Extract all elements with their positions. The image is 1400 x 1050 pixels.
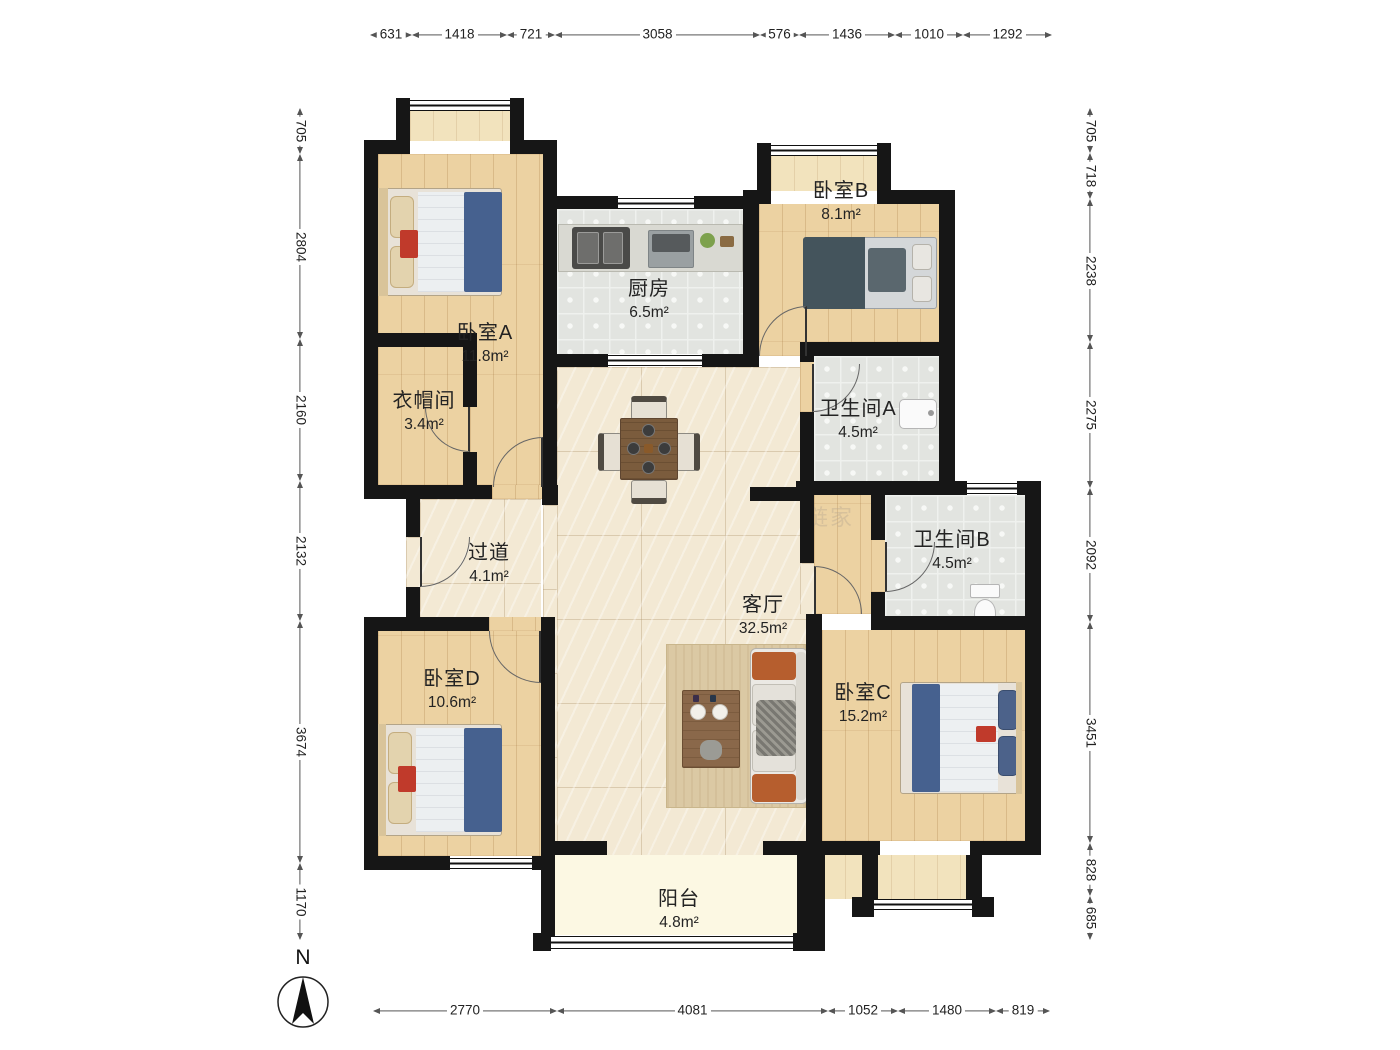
bottle (693, 695, 699, 702)
dimension-segment: 3674 (291, 621, 309, 863)
toilet-tank (970, 584, 1000, 598)
wall-segment (532, 856, 555, 870)
wall-segment (972, 897, 994, 917)
room-label-hallway: 过道4.1m² (429, 536, 549, 586)
dimension-segment: 2238 (1081, 199, 1099, 342)
table-centerpiece (644, 444, 653, 453)
dimension-segment: 705 (291, 108, 309, 154)
sofa-throw-blanket (756, 700, 796, 756)
dimension-segment: 2132 (291, 481, 309, 621)
wall-segment (796, 481, 967, 495)
wall-segment (800, 495, 814, 563)
dimension-segment: 2092 (1081, 488, 1099, 622)
dimension-segment: 1170 (291, 863, 309, 940)
sofa-cushion-orange (752, 652, 796, 680)
kitchen-utensils (720, 236, 734, 247)
wall-segment (966, 855, 982, 899)
table-decor (700, 740, 722, 760)
wall-segment (548, 354, 608, 367)
wall-segment (763, 841, 808, 855)
window-balcony (551, 936, 793, 949)
wall-segment (852, 897, 874, 917)
dining-chair (598, 433, 622, 471)
wall-segment (806, 614, 822, 855)
room-label-living: 客厅32.5m² (703, 588, 823, 638)
bed-headboard (1016, 682, 1022, 794)
dimension-chain-left: 705 2804 2160 2132 3674 1170 (291, 108, 309, 940)
wall-segment (871, 616, 1039, 630)
tableware (712, 704, 728, 720)
dimension-segment: 721 (507, 26, 555, 44)
wall-segment (757, 143, 771, 204)
plate (658, 442, 671, 455)
tableware (690, 704, 706, 720)
bed-blanket-red (398, 766, 416, 792)
dimension-segment: 1010 (895, 26, 963, 44)
sliding-door-kitchen (608, 355, 702, 366)
wall-segment (543, 140, 557, 485)
window-bay-bedroom-a (410, 100, 510, 111)
dimension-segment: 2275 (1081, 342, 1099, 488)
room-label-balcony: 阳台4.8m² (619, 882, 739, 932)
window-bay-bedroom-c (874, 899, 972, 910)
wall-segment (396, 98, 410, 154)
wall-segment (743, 190, 759, 366)
wall-segment (406, 485, 420, 537)
window-kitchen (618, 198, 694, 209)
room-label-bedroom-b: 卧室B8.1m² (781, 174, 901, 224)
dining-chair (631, 480, 667, 504)
room-label-bedroom-a: 卧室A11.8m² (425, 316, 545, 366)
dimension-segment: 2770 (373, 1002, 557, 1020)
wall-segment (364, 617, 489, 631)
wall-segment (547, 841, 607, 855)
room-label-cloakroom: 衣帽间3.4m² (364, 384, 484, 434)
bed-blanket-red (976, 726, 996, 742)
wall-segment (862, 855, 878, 899)
dimension-segment: 1480 (898, 1002, 996, 1020)
wall-segment (1025, 495, 1041, 855)
bed-blanket-blue (464, 728, 502, 832)
dimension-chain-right: 705 718 2238 2275 2092 3451 828 685 (1081, 108, 1099, 940)
dimension-segment: 819 (996, 1002, 1050, 1020)
compass-icon (274, 972, 332, 1030)
floor-door-gap (871, 540, 885, 592)
sink-basin (603, 232, 623, 264)
compass-north-label: N (274, 946, 332, 970)
dimension-segment: 828 (1081, 843, 1099, 896)
dimension-segment: 3451 (1081, 622, 1099, 843)
room-label-bathroom-a: 卫生间A4.5m² (798, 392, 918, 442)
sofa-backrest (796, 652, 806, 800)
dimension-segment: 576 (760, 26, 799, 44)
plate (642, 424, 655, 437)
wall-segment (364, 856, 450, 870)
wall-segment (510, 98, 524, 154)
wall-segment (702, 354, 759, 367)
bed-quilt (418, 192, 464, 292)
plate (627, 442, 640, 455)
dimension-segment: 685 (1081, 896, 1099, 940)
dimension-segment: 2804 (291, 154, 309, 339)
wall-segment (533, 933, 551, 951)
dimension-chain-bottom: 2770 4081 1052 1480 819 (373, 1002, 1050, 1020)
wall-segment (970, 841, 1041, 855)
basin-drain (928, 410, 934, 416)
dimension-segment: 3058 (555, 26, 760, 44)
dimension-segment: 4081 (557, 1002, 828, 1020)
floor-door-gap (406, 537, 420, 587)
bottle (710, 695, 716, 702)
dining-chair (631, 396, 667, 420)
bed-blanket-teal (803, 237, 865, 309)
sink-basin (577, 232, 599, 264)
wall-segment (806, 841, 880, 855)
dimension-segment: 631 (370, 26, 412, 44)
dimension-segment: 718 (1081, 153, 1099, 199)
bed-quilt (416, 728, 464, 832)
wall-segment (750, 487, 807, 501)
bed-blanket-red (400, 230, 418, 258)
dimension-segment: 1418 (412, 26, 507, 44)
dimension-segment: 1436 (799, 26, 895, 44)
window-bathroom-b (967, 483, 1017, 494)
dimension-segment: 1292 (963, 26, 1052, 44)
room-label-bedroom-c: 卧室C15.2m² (803, 676, 923, 726)
wall-segment (557, 196, 618, 209)
floor-bay-a (410, 111, 510, 141)
dining-chair (676, 433, 700, 471)
wall-segment (1017, 481, 1041, 495)
window-bedroom-d (450, 858, 532, 869)
window-bay-bedroom-b (771, 145, 877, 156)
bed-headboard (378, 188, 388, 296)
wall-segment (542, 485, 558, 505)
wall-segment (694, 196, 743, 209)
pillow (912, 244, 932, 270)
pillow (998, 736, 1018, 776)
stove-top (652, 234, 690, 252)
dimension-chain-top: 631 1418 721 3058 576 1436 1010 1292 (370, 26, 1052, 44)
floor-bay-c (822, 855, 972, 899)
compass (274, 972, 332, 1035)
dimension-segment: 2160 (291, 339, 309, 481)
sofa-cushion-orange (752, 774, 796, 802)
room-label-bedroom-d: 卧室D10.6m² (392, 662, 512, 712)
floor-plan: 631 1418 721 3058 576 1436 1010 1292 277… (0, 0, 1400, 1050)
pillow (912, 276, 932, 302)
wall-segment (364, 140, 400, 154)
plant (700, 233, 715, 248)
wall-segment (364, 485, 492, 499)
floor-door-gap (492, 485, 542, 499)
wall-segment (793, 933, 811, 951)
dimension-segment: 705 (1081, 108, 1099, 153)
dimension-segment: 1052 (828, 1002, 898, 1020)
wall-segment (871, 495, 885, 540)
bed-blanket-blue (464, 192, 502, 292)
room-label-bathroom-b: 卫生间B4.5m² (892, 523, 1012, 573)
wall-segment (364, 617, 378, 870)
wall-segment (541, 617, 555, 937)
room-label-kitchen: 厨房6.5m² (589, 272, 709, 322)
plate (642, 461, 655, 474)
bed-blanket (868, 248, 906, 292)
floor-door-gap (489, 617, 541, 631)
pillow (998, 690, 1018, 730)
wall-segment (806, 342, 955, 356)
